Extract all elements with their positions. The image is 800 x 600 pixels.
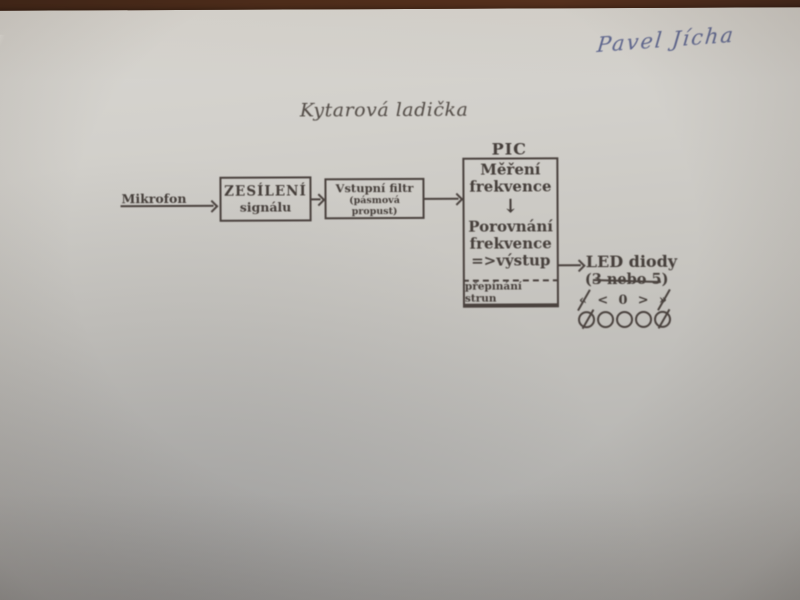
photo-vignette xyxy=(0,7,800,600)
led-circle xyxy=(635,311,652,328)
led-circle xyxy=(597,311,614,328)
arrow-filter-to-pic-head xyxy=(451,193,464,206)
pic-footer-label: přepínání strun xyxy=(465,280,557,304)
diagram-title: Kytarová ladička xyxy=(299,99,469,122)
led-symbol-far-left: « xyxy=(579,293,587,308)
input-filter-box: Vstupní filtr (pásmová propust) xyxy=(324,178,424,219)
led-symbol-center: 0 xyxy=(618,293,627,308)
led-title: LED diody xyxy=(586,252,677,271)
led-circle xyxy=(654,311,671,328)
pic-label: PIC xyxy=(487,139,531,158)
input-filter-box-line2: (pásmová propust) xyxy=(326,194,422,216)
led-direction-symbols: « < 0 > » xyxy=(579,293,667,308)
pic-footer-string-switching: přepínání strun xyxy=(463,279,559,305)
amplifier-box-line1: ZESÍLENÍ xyxy=(224,183,307,199)
amplifier-box-line2: signálu xyxy=(240,199,292,214)
pic-step1-line2: frekvence xyxy=(469,178,551,195)
led-symbol-left: < xyxy=(597,293,608,308)
led-circle xyxy=(578,311,595,328)
paper-corner-curl xyxy=(0,35,7,61)
arrow-mikrofon-to-amp-head xyxy=(206,200,219,213)
pic-flow-arrow-icon: ↓ xyxy=(503,195,519,218)
led-symbol-right: > xyxy=(638,293,649,308)
amplifier-box: ZESÍLENÍ signálu xyxy=(219,176,311,221)
arrow-mikrofon-to-amp-line xyxy=(121,205,214,207)
microphone-label: Mikrofon xyxy=(121,191,186,206)
arrow-amp-to-filter-head xyxy=(313,193,326,206)
arrow-pic-to-led-head xyxy=(573,259,586,272)
handwritten-author-name: Pavel Jícha xyxy=(596,19,788,57)
pic-step2-line3: =>výstup xyxy=(471,252,550,269)
pic-step1-line1: Měření xyxy=(480,161,540,178)
paper-sheet: Pavel Jícha Kytarová ladička Mikrofon ZE… xyxy=(0,7,800,600)
led-circles-row xyxy=(578,311,671,328)
led-symbol-far-right: » xyxy=(659,293,667,308)
photo-of-paper-diagram: Pavel Jícha Kytarová ladička Mikrofon ZE… xyxy=(0,0,800,600)
input-filter-box-line1: Vstupní filtr xyxy=(335,180,413,194)
pic-step2-line1: Porovnání xyxy=(468,218,553,235)
led-circle xyxy=(616,311,633,328)
pic-step2-line2: frekvence xyxy=(470,235,552,252)
